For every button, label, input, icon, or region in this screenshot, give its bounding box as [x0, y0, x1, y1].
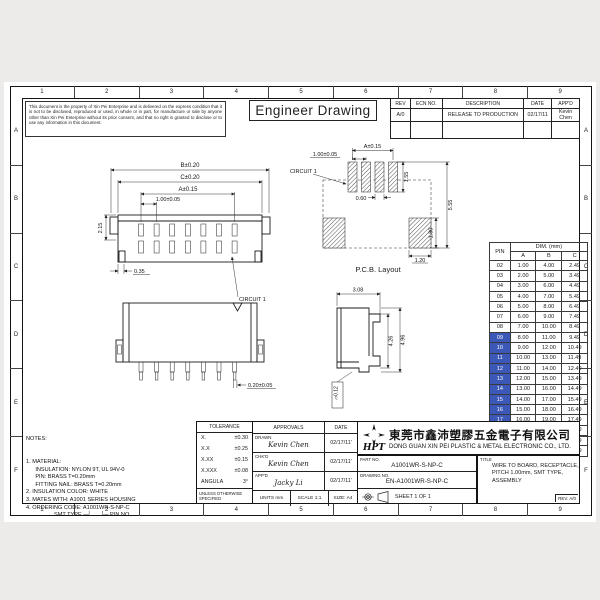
description-value: RELEASE TO PRODUCTION [442, 109, 524, 122]
pin-number-cell: 02 [490, 261, 511, 271]
bottom-view: 0.20±0.05 [116, 303, 276, 389]
pin-table-row: 1413.0016.0014.49 [490, 384, 588, 394]
dim-a-header: A [510, 252, 536, 261]
pin-number-cell: 05 [490, 291, 511, 301]
scale-label: SCALE 1:1 [291, 491, 329, 506]
frame-coordinate-label: 1 [10, 86, 75, 98]
dim-value-cell: 8.00 [510, 333, 536, 343]
frame-coordinate-label: 7 [399, 504, 464, 516]
note-line: PIN: BRASS T=0.20mm [26, 474, 194, 482]
dim-label-offset: 0.35 [134, 269, 145, 275]
tol-label: ANGULA [201, 477, 223, 488]
appd-col-header: APP'D [552, 99, 580, 109]
frame-coordinate-label: F [10, 437, 22, 504]
date-col-header: DATE [524, 99, 552, 109]
part-no-label: PART NO. [360, 457, 380, 462]
drawn-label: DRAWN [255, 435, 271, 440]
dim-value-cell: 4.00 [536, 261, 562, 271]
pin-number-cell: 08 [490, 322, 511, 332]
pin-table-row: 1312.0015.0013.49 [490, 374, 588, 384]
frame-coordinate-label: 6 [334, 86, 399, 98]
dim-value-cell: 10.49 [562, 343, 588, 353]
size-label: SIZE: A4 [329, 491, 357, 506]
dim-label-pin-width: 0.20±0.05 [248, 383, 272, 389]
dim-value-cell: 15.49 [562, 394, 588, 404]
ecn-value [410, 109, 442, 122]
pin-number-cell: 13 [490, 374, 511, 384]
note-line: INSULATION: NYLON 9T, UL 94V-0 [26, 467, 194, 475]
dim-value-cell: 1.00 [510, 261, 536, 271]
tolerance-footnote: UNLESS OTHERWISE SPECIFIED [197, 488, 252, 503]
pcb-circuit1-label: CIRCUIT 1 [290, 169, 317, 175]
dim-value-cell: 5.00 [510, 302, 536, 312]
note-line: FITTING NAIL: BRASS T=0.20mm [26, 482, 194, 490]
tolerance-row: X.X±0.25 [197, 444, 252, 455]
dim-value-cell: 9.49 [562, 333, 588, 343]
dim-label-a: A±0.15 [179, 187, 199, 193]
dim-value-cell: 9.00 [536, 312, 562, 322]
pin-table-row: 098.0011.009.49 [490, 333, 588, 343]
note-line: 4. ORDERING CODE: A1001WR-S-NP-C [26, 505, 194, 513]
tolerance-row: ANGULA3° [197, 477, 252, 488]
side-dim-inner-height: 4.26 [389, 336, 395, 347]
frame-coordinate-label: 3 [140, 86, 205, 98]
checked-label: CHK'D [255, 454, 268, 459]
third-angle-projection-icon [361, 490, 391, 504]
notes-block: NOTES: 1. MATERIAL: INSULATION: NYLON 9T… [26, 421, 194, 527]
side-flatness-callout: ▱0.12 [334, 386, 340, 400]
logo-text: HPT [362, 443, 386, 452]
pcb-dim-pad-height: 1.55 [404, 172, 410, 183]
note-line: 3. MATES WITH: A1001 SERIES HOUSING [26, 497, 194, 505]
description-col-header: DESCRIPTION [442, 99, 524, 109]
dim-value-cell: 5.00 [536, 271, 562, 281]
dim-value-cell: 15.00 [536, 374, 562, 384]
dim-value-cell: 6.49 [562, 302, 588, 312]
rev-value: A/0 [391, 109, 411, 122]
dim-value-cell: 3.49 [562, 271, 588, 281]
frame-coordinate-label: 2 [75, 86, 140, 98]
pin-number-cell: 04 [490, 281, 511, 291]
frame-coordinate-label: 7 [399, 86, 464, 98]
dim-label-pitch: 1.00±0.05 [156, 197, 180, 203]
dim-value-cell: 14.00 [510, 394, 536, 404]
pin-number-cell: 12 [490, 363, 511, 373]
dim-col-header: DIM. (mm) [510, 243, 587, 252]
note-line: 1. MATERIAL: [26, 459, 194, 467]
property-disclaimer: This document is the property of Xin Pei… [25, 101, 226, 137]
dim-value-cell: 4.00 [510, 291, 536, 301]
title-line: PITCH 1.00mm, SMT TYPE, [492, 470, 579, 477]
dim-value-cell: 8.49 [562, 322, 588, 332]
dim-value-cell: 10.00 [536, 322, 562, 332]
dim-value-cell: 13.00 [510, 384, 536, 394]
notes-lines: 1. MATERIAL: INSULATION: NYLON 9T, UL 94… [26, 459, 194, 520]
company-name-cn: 東莞市鑫沛塑膠五金電子有限公司 [389, 427, 571, 443]
tol-value: ±0.25 [235, 444, 248, 455]
pin-number-cell: 14 [490, 384, 511, 394]
dim-value-cell: 6.00 [510, 312, 536, 322]
approvals-block: APPROVALS DATE DRAWN Kevin Chen 02/17/11… [252, 421, 358, 504]
front-circuit1-label: CIRCUIT 1 [239, 297, 266, 303]
appd-value: Kevin Chen [552, 109, 580, 122]
pcb-dim-nail-width: 1.20 [415, 258, 426, 264]
pin-number-cell: 06 [490, 302, 511, 312]
frame-coordinate-label: A [580, 98, 592, 166]
dim-value-cell: 8.00 [536, 302, 562, 312]
date-value: 02/17/11 [524, 109, 552, 122]
drawing-no-cell: DRAWING NO. EN-A1001WR-S-NP-C [358, 472, 476, 489]
revision-empty-row [391, 122, 580, 139]
dim-value-cell: 12.00 [510, 374, 536, 384]
title-line: ASSEMBLY [492, 478, 579, 485]
frame-coordinate-label: B [580, 166, 592, 234]
pin-number-cell: 11 [490, 353, 511, 363]
pin-table-row: 1110.0013.0011.49 [490, 353, 588, 363]
pin-number-cell: 03 [490, 271, 511, 281]
side-dim-height: 4.96 [401, 335, 407, 346]
pin-table-row: 021.004.002.49 [490, 261, 588, 271]
checked-signature: Kevin Chen [253, 460, 324, 468]
dim-value-cell: 15.00 [510, 405, 536, 415]
approved-label: APP'D [255, 473, 268, 478]
company-block: HPT 東莞市鑫沛塑膠五金電子有限公司 DONG GUAN XIN PEI PL… [357, 421, 580, 455]
pcb-dim-a: A±0.15 [364, 144, 381, 150]
pcb-dim-span: 5.55 [448, 200, 454, 211]
company-name-en: DONG GUAN XIN PEI PLASTIC & METAL ELECTR… [389, 444, 571, 450]
side-dim-width: 3.08 [353, 288, 364, 294]
drawing-no-label: DRAWING NO. [360, 473, 389, 478]
frame-coordinate-label: 9 [528, 504, 592, 516]
dim-value-cell: 7.00 [536, 291, 562, 301]
checked-date: 02/17/11' [325, 453, 357, 471]
approvals-heading: APPROVALS [253, 422, 325, 433]
tol-label: X.XXX [201, 466, 217, 477]
pin-table-row: 109.0012.0010.49 [490, 343, 588, 353]
company-logo: HPT [361, 424, 387, 452]
pin-table-row: 1514.0017.0015.49 [490, 394, 588, 404]
dim-value-cell: 11.00 [510, 363, 536, 373]
revision-table: REV ECN NO. DESCRIPTION DATE APP'D A/0 R… [390, 98, 580, 139]
tol-value: ±0.08 [235, 466, 248, 477]
frame-coordinate-label: 8 [463, 504, 528, 516]
dim-value-cell: 7.00 [510, 322, 536, 332]
dim-c-header: C [562, 252, 588, 261]
frame-coordinate-label: 8 [463, 86, 528, 98]
dim-value-cell: 13.49 [562, 374, 588, 384]
dim-value-cell: 5.49 [562, 291, 588, 301]
frame-coordinate-label: 5 [269, 86, 334, 98]
dim-value-cell: 10.00 [510, 353, 536, 363]
drawn-date: 02/17/11' [325, 434, 357, 452]
front-view: B±0.20 C±0.20 A±0.15 1.00±0.05 2.15 0.35… [98, 163, 270, 303]
dim-value-cell: 16.49 [562, 405, 588, 415]
dim-value-cell: 3.00 [510, 281, 536, 291]
frame-ruler-top: 123456789 [10, 86, 592, 98]
pin-col-header: PIN [490, 243, 511, 261]
page-title: Engineer Drawing [249, 100, 377, 121]
approved-date: 02/17/11' [325, 472, 357, 490]
frame-coordinate-label: 9 [528, 86, 592, 98]
pin-number-cell: 09 [490, 333, 511, 343]
pin-number-cell: 10 [490, 343, 511, 353]
units-label: UNITS mm [253, 491, 291, 506]
note-line: SMT TYPE ─┘ └─ PIN NO. [26, 512, 194, 520]
part-drawing-block: PART NO. A1001WR-S-NP-C DRAWING NO. EN-A… [357, 455, 477, 504]
pin-table-row: 065.008.006.49 [490, 302, 588, 312]
pin-table-row: 032.005.003.49 [490, 271, 588, 281]
tol-value: ±0.30 [235, 433, 248, 444]
title-label: TITLE [480, 457, 492, 462]
pin-table-row: 1211.0014.0012.49 [490, 363, 588, 373]
dim-value-cell: 7.49 [562, 312, 588, 322]
dim-value-cell: 6.00 [536, 281, 562, 291]
ecn-col-header: ECN NO. [410, 99, 442, 109]
dim-value-cell: 11.49 [562, 353, 588, 363]
tolerance-row: X.±0.30 [197, 433, 252, 444]
pin-number-cell: 07 [490, 312, 511, 322]
pcb-dim-pad-width: 0.60 [356, 196, 367, 202]
pcb-layout-caption: P.C.B. Layout [355, 265, 401, 274]
pcb-layout-view: A±0.15 1.00±0.05 CIRCUIT 1 1.55 0.60 5.5… [290, 144, 454, 274]
title-line: WIRE TO BOARD, RECEPTACLE, [492, 463, 579, 470]
pin-number-cell: 16 [490, 405, 511, 415]
pin-number-cell: 15 [490, 394, 511, 404]
frame-coordinate-label: 4 [204, 86, 269, 98]
dim-value-cell: 14.00 [536, 363, 562, 373]
tolerance-heading: TOLERANCE [197, 422, 252, 433]
pin-table-row: 043.006.004.49 [490, 281, 588, 291]
tol-value: 3° [243, 477, 248, 488]
dim-label-height: 2.15 [98, 223, 104, 234]
approvals-date-heading: DATE [325, 422, 357, 433]
sheet-label: SHEET 1 OF 1 [395, 494, 431, 500]
rev-badge: REV. A/0 [555, 494, 578, 502]
pcb-dim-pitch: 1.00±0.05 [313, 152, 337, 158]
pin-table-row: 076.009.007.49 [490, 312, 588, 322]
dim-value-cell: 12.00 [536, 343, 562, 353]
side-view: 3.08 4.26 4.96 ▱0.12 [332, 288, 407, 409]
dim-value-cell: 2.49 [562, 261, 588, 271]
dim-value-cell: 17.00 [536, 394, 562, 404]
pin-table-row: 1615.0018.0016.49 [490, 405, 588, 415]
dim-b-header: B [536, 252, 562, 261]
pin-table-row: 054.007.005.49 [490, 291, 588, 301]
dim-value-cell: 14.49 [562, 384, 588, 394]
tolerance-row: X.XX±0.15 [197, 455, 252, 466]
drawn-signature: Kevin Chen [253, 441, 324, 449]
note-line: 2. INSULATION COLOR: WHITE [26, 489, 194, 497]
dim-value-cell: 12.49 [562, 363, 588, 373]
tol-value: ±0.15 [235, 455, 248, 466]
pin-table-row: 087.0010.008.49 [490, 322, 588, 332]
dim-value-cell: 13.00 [536, 353, 562, 363]
dim-label-b: B±0.20 [181, 163, 201, 169]
dim-value-cell: 16.00 [536, 384, 562, 394]
tol-label: X.XX [201, 455, 213, 466]
tolerance-block: TOLERANCE X.±0.30 X.X±0.25 X.XX±0.15 X.X… [196, 421, 253, 504]
notes-heading: NOTES: [26, 436, 194, 444]
rev-col-header: REV [391, 99, 411, 109]
tol-label: X.X [201, 444, 210, 455]
tolerance-row: X.XXX±0.08 [197, 466, 252, 477]
part-no-cell: PART NO. A1001WR-S-NP-C [358, 456, 476, 472]
pcb-dim-nail-height: 1.80 [429, 228, 435, 239]
dim-value-cell: 4.49 [562, 281, 588, 291]
dim-value-cell: 2.00 [510, 271, 536, 281]
approved-signature: Jacky Li [253, 479, 324, 487]
drawing-views-canvas: B±0.20 C±0.20 A±0.15 1.00±0.05 2.15 0.35… [20, 140, 480, 420]
title-cell: TITLE WIRE TO BOARD, RECEPTACLE, PITCH 1… [477, 455, 580, 504]
dim-label-c: C±0.20 [180, 175, 200, 181]
dim-value-cell: 18.00 [536, 405, 562, 415]
dim-value-cell: 9.00 [510, 343, 536, 353]
tol-label: X. [201, 433, 206, 444]
sheet-cell: SHEET 1 OF 1 [358, 489, 476, 505]
dim-value-cell: 11.00 [536, 333, 562, 343]
